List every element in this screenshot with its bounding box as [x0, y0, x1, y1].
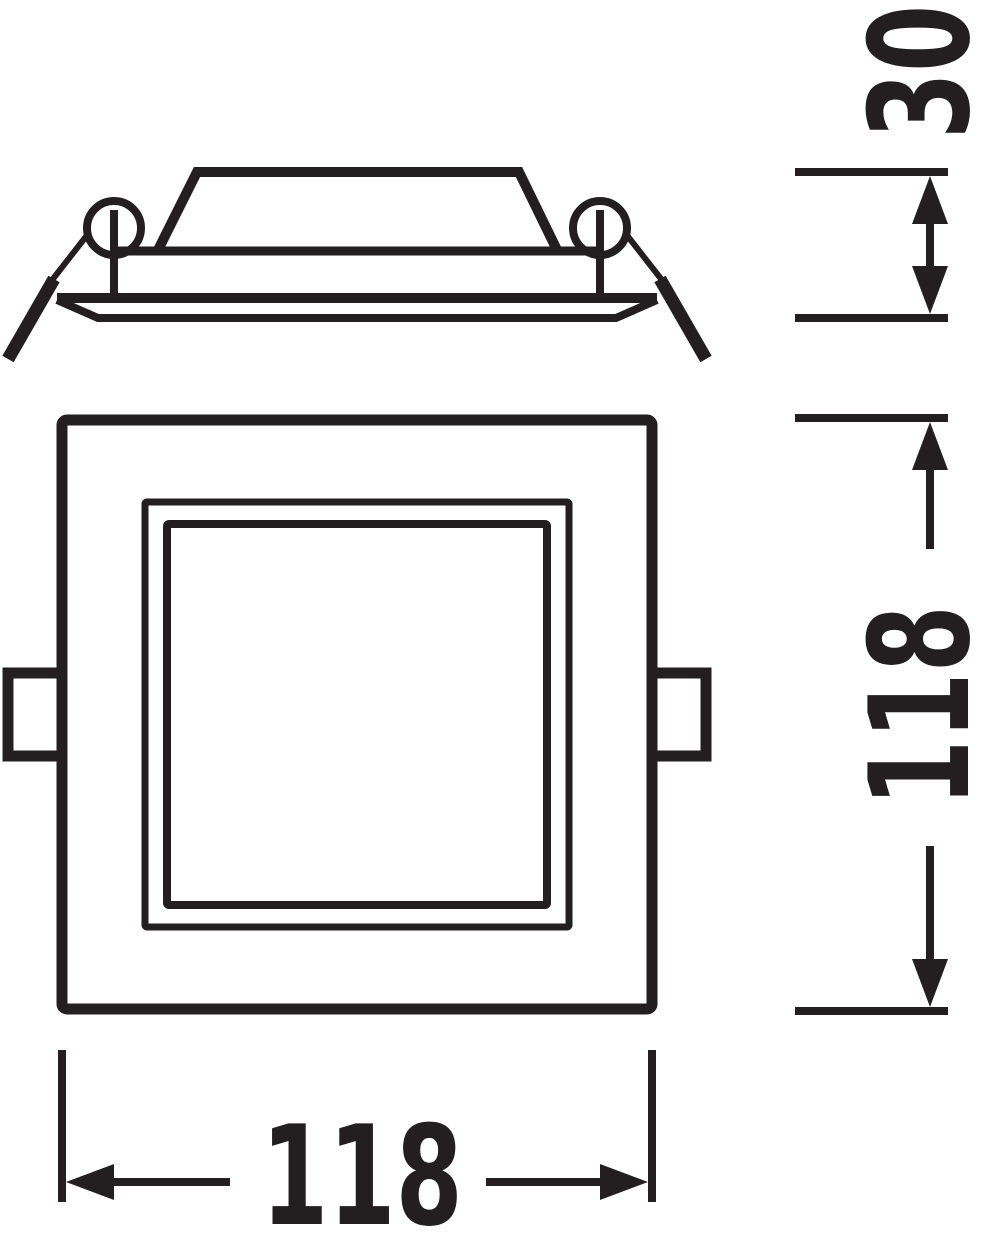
arrow-right-icon [600, 1164, 648, 1200]
dimension-label-width: 118 [222, 1107, 502, 1247]
dimension-label-depth: 30 [851, 0, 991, 212]
arrow-left-icon [66, 1164, 114, 1200]
arrow-down-icon [912, 959, 948, 1007]
spring-arm-right [660, 279, 706, 359]
housing-trapezoid [158, 172, 557, 250]
arrow-down-icon [912, 266, 948, 314]
spring-arm-left [8, 279, 54, 359]
arrow-up-icon [912, 422, 948, 470]
mounting-tab-right [652, 673, 706, 756]
spring-wire-left [49, 234, 88, 284]
technical-drawing-canvas: 30 118 118 [0, 0, 1000, 1253]
mounting-tab-left [8, 673, 62, 756]
outer-frame [62, 420, 652, 1009]
dimension-label-height: 118 [851, 566, 991, 846]
front-view [8, 420, 706, 1009]
side-profile-view [8, 172, 706, 359]
spring-wire-right [626, 234, 665, 284]
